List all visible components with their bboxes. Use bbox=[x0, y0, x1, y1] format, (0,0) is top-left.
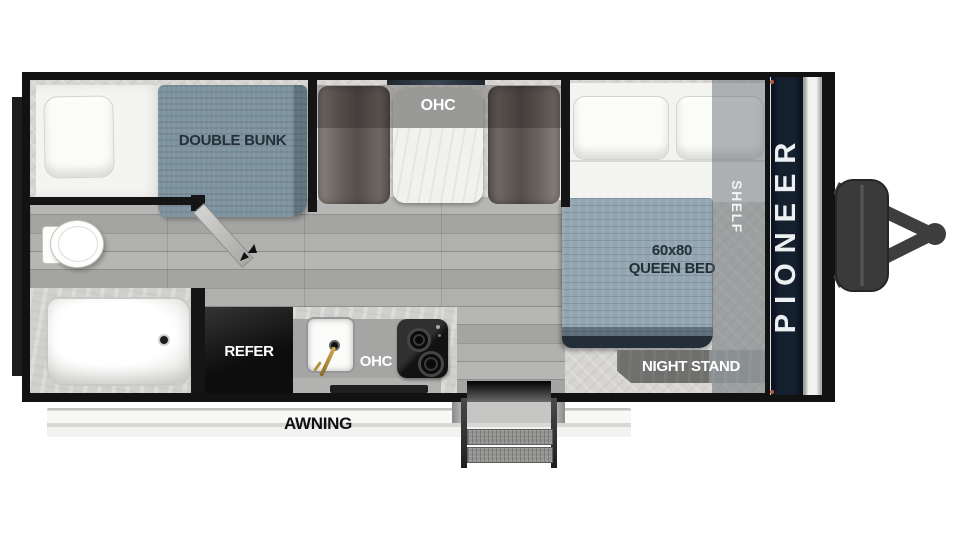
step-tread-2 bbox=[467, 447, 553, 463]
double-bunk-label: DOUBLE BUNK bbox=[158, 132, 307, 149]
shelf-label: SHELF bbox=[729, 180, 745, 234]
entry-door bbox=[467, 381, 551, 402]
bunk-pillow bbox=[43, 95, 114, 178]
hitch bbox=[830, 163, 960, 308]
stove bbox=[397, 319, 448, 378]
kitchen-ohc-label: OHC bbox=[356, 353, 396, 370]
dinette-ohc-label: OHC bbox=[393, 97, 483, 115]
stove-burner-rear bbox=[418, 351, 444, 377]
bathtub-drain bbox=[160, 336, 168, 344]
wall-dinette-bedroom bbox=[561, 80, 570, 207]
wall-top bbox=[22, 72, 835, 80]
queen-pillow-left bbox=[573, 96, 669, 160]
wall-rear bbox=[22, 72, 30, 402]
refer-label: REFER bbox=[205, 343, 293, 360]
floorplan-canvas: DOUBLE BUNK OHC 60x80 QUEEN BED SHELF NI… bbox=[0, 0, 960, 540]
bathtub bbox=[46, 297, 191, 386]
stove-knob-2 bbox=[438, 334, 441, 337]
stove-knob-1 bbox=[436, 325, 440, 329]
dinette-table: OHC bbox=[393, 88, 483, 203]
stove-burner-front bbox=[407, 328, 431, 352]
night-stand: NIGHT STAND bbox=[617, 350, 765, 383]
wall-bunk-bottom bbox=[30, 197, 192, 205]
night-stand-label: NIGHT STAND bbox=[617, 358, 765, 375]
step-landing bbox=[452, 402, 565, 423]
marker-light-top bbox=[770, 80, 774, 84]
awning-label: AWNING bbox=[258, 414, 378, 434]
shelf bbox=[712, 80, 765, 393]
wall-bottom bbox=[22, 393, 835, 402]
coupler-ball bbox=[924, 223, 946, 245]
refrigerator: REFER bbox=[205, 307, 293, 393]
queen-bed-blanket: 60x80 QUEEN BED bbox=[562, 198, 713, 348]
brand-stripe-light bbox=[803, 77, 822, 395]
toilet-bowl bbox=[58, 226, 98, 262]
wall-bunk-dinette bbox=[308, 80, 317, 212]
step-tread-1 bbox=[467, 429, 553, 445]
marker-light-bottom bbox=[770, 390, 774, 394]
dinette-ohc: OHC bbox=[393, 88, 483, 128]
kitchen-window bbox=[330, 385, 428, 393]
wall-bath-kitchen bbox=[191, 288, 205, 400]
